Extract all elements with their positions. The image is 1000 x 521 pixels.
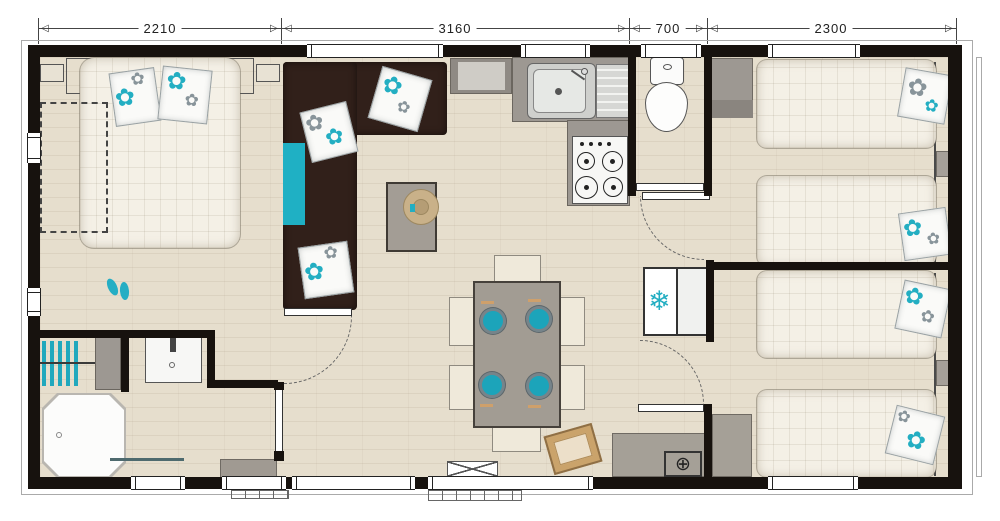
window-bedroom-top — [768, 44, 860, 58]
window-side-left — [27, 133, 41, 163]
wall-top — [443, 45, 521, 57]
wall-wc-bedroom — [704, 57, 712, 196]
dining-chair-right — [560, 297, 585, 346]
wall-door-cap — [274, 382, 284, 390]
flower-icon: ✿ — [395, 99, 412, 118]
sofa-pillow: ✿ ✿ — [298, 241, 355, 299]
toilet-tank — [650, 57, 684, 85]
burner — [603, 177, 623, 197]
water-heater: ⊕ — [664, 451, 702, 477]
place-setting — [526, 373, 552, 399]
arrow-left-icon: ◁ — [41, 24, 49, 34]
window-side-left — [27, 288, 41, 316]
wall-bottom — [185, 477, 222, 489]
dimension-label-bedrooms: 2300 — [810, 21, 853, 36]
wall-bottom — [38, 477, 131, 489]
bathroom-door-leaf — [275, 388, 283, 453]
window-wc — [641, 44, 701, 58]
door-entry-main — [428, 476, 593, 490]
place-setting — [480, 308, 506, 334]
arrow-right-icon: ▷ — [270, 24, 278, 34]
dining-chair-left — [449, 297, 474, 346]
door-entry-bedroom — [222, 476, 286, 490]
entry-step — [231, 490, 289, 499]
bed-pillow: ✿ ✿ — [897, 67, 953, 125]
flower-icon: ✿ — [129, 70, 145, 89]
wall-top — [38, 45, 307, 57]
dimension-label-living: 3160 — [434, 21, 477, 36]
wall-bathroom-stub — [121, 332, 129, 392]
flower-icon: ✿ — [165, 69, 188, 95]
arrow-right-icon: ▷ — [618, 24, 626, 34]
bed-pillow: ✿ ✿ — [157, 66, 212, 125]
hat-ribbon — [410, 204, 415, 212]
cutlery — [481, 301, 494, 304]
bed-pillow: ✿ ✿ — [108, 67, 161, 127]
stove-knob — [607, 142, 611, 146]
flower-icon: ✿ — [323, 243, 339, 262]
bathroom-cabinet — [95, 333, 121, 390]
flower-icon: ✿ — [895, 408, 912, 427]
bedroom-door-leaf — [284, 308, 352, 316]
place-setting — [526, 306, 552, 332]
flower-icon: ✿ — [903, 427, 928, 455]
flower-icon: ✿ — [926, 231, 942, 249]
fridge-door — [676, 269, 707, 334]
wall-bottom — [415, 477, 428, 489]
entry-threshold — [447, 461, 498, 477]
wall-fridge-nook — [706, 260, 714, 342]
wardrobe-zone-dashed — [40, 102, 108, 233]
wall-left — [28, 45, 40, 489]
bedroom-wardrobe-shelf — [710, 100, 753, 118]
flower-icon: ✿ — [902, 215, 924, 240]
faucet-base — [581, 68, 588, 75]
arrow-left-icon: ◁ — [632, 24, 640, 34]
sofa-chaise-pad — [283, 143, 305, 225]
flower-icon: ✿ — [919, 307, 936, 327]
flower-icon: ✿ — [303, 259, 326, 286]
stove-knob — [589, 142, 593, 146]
cutlery — [528, 299, 541, 302]
shower-drain — [56, 432, 62, 438]
window-living-bottom — [292, 476, 415, 490]
sink-drain — [555, 88, 562, 95]
floorplan-canvas: 2210 3160 700 2300 ◁ ▷ ◁ ▷ ◁ ▷ ◁ ▷ ✿ ✿ ✿… — [0, 0, 1000, 521]
window-kitchen — [521, 44, 590, 58]
bed-pillow: ✿ ✿ — [898, 207, 952, 261]
water-heater-icon: ⊕ — [675, 454, 691, 475]
window-living-top — [307, 44, 443, 58]
dining-chair-top — [494, 255, 541, 282]
wall-door-cap — [274, 451, 284, 461]
flower-icon: ✿ — [323, 124, 346, 150]
burner — [575, 176, 598, 199]
cutlery — [480, 404, 493, 407]
exterior-right-trim — [976, 57, 982, 477]
bed-pillow: ✿ ✿ — [894, 280, 951, 339]
dining-chair-bottom — [492, 426, 541, 452]
cutlery — [528, 405, 541, 408]
nightstand-right — [256, 64, 280, 82]
arrow-left-icon: ◁ — [284, 24, 292, 34]
wc-door-leaf — [636, 183, 704, 191]
flower-icon: ✿ — [923, 96, 940, 115]
wall-right — [948, 45, 962, 489]
shower-glass-screen — [110, 458, 184, 461]
dimension-label-bedroom: 2210 — [139, 21, 182, 36]
window-bathroom — [131, 476, 185, 490]
burner — [577, 152, 595, 170]
drainer-board — [596, 64, 630, 118]
wall-vestibule — [207, 380, 278, 388]
window-bedroom-bottom — [768, 476, 858, 490]
wall-kitchen-wc — [628, 57, 636, 196]
arrow-right-icon: ▷ — [945, 24, 953, 34]
stove-knob — [598, 142, 602, 146]
flush-button — [663, 64, 672, 70]
radiator-rail — [36, 362, 98, 364]
flower-icon: ✿ — [184, 91, 200, 109]
basin-drain — [169, 362, 175, 368]
wall-bedroom-divider — [712, 262, 950, 270]
place-setting — [479, 372, 505, 398]
nightstand-left — [40, 64, 64, 82]
wall-bottom — [858, 477, 950, 489]
burner — [602, 151, 623, 172]
wall-bottom — [593, 477, 768, 489]
dining-chair-right — [560, 365, 585, 410]
basin-faucet — [170, 338, 176, 352]
cutting-board — [458, 62, 505, 90]
wall-hall-bedroom — [704, 404, 712, 477]
stove-knob — [580, 142, 584, 146]
snowflake-icon: ❄ — [648, 286, 671, 317]
dining-chair-left — [449, 365, 474, 410]
wall-top — [701, 45, 768, 57]
wall-top — [590, 45, 641, 57]
bedroom-wardrobe — [712, 414, 752, 477]
dimension-label-wc: 700 — [651, 21, 686, 36]
flower-icon: ✿ — [303, 110, 326, 136]
entry-step — [428, 490, 522, 501]
arrow-left-icon: ◁ — [710, 24, 718, 34]
flower-icon: ✿ — [379, 72, 405, 101]
hat-crown — [413, 199, 429, 215]
arrow-right-icon: ▷ — [696, 24, 704, 34]
wall-top — [860, 45, 950, 57]
bedroom2-door-leaf — [638, 404, 704, 412]
